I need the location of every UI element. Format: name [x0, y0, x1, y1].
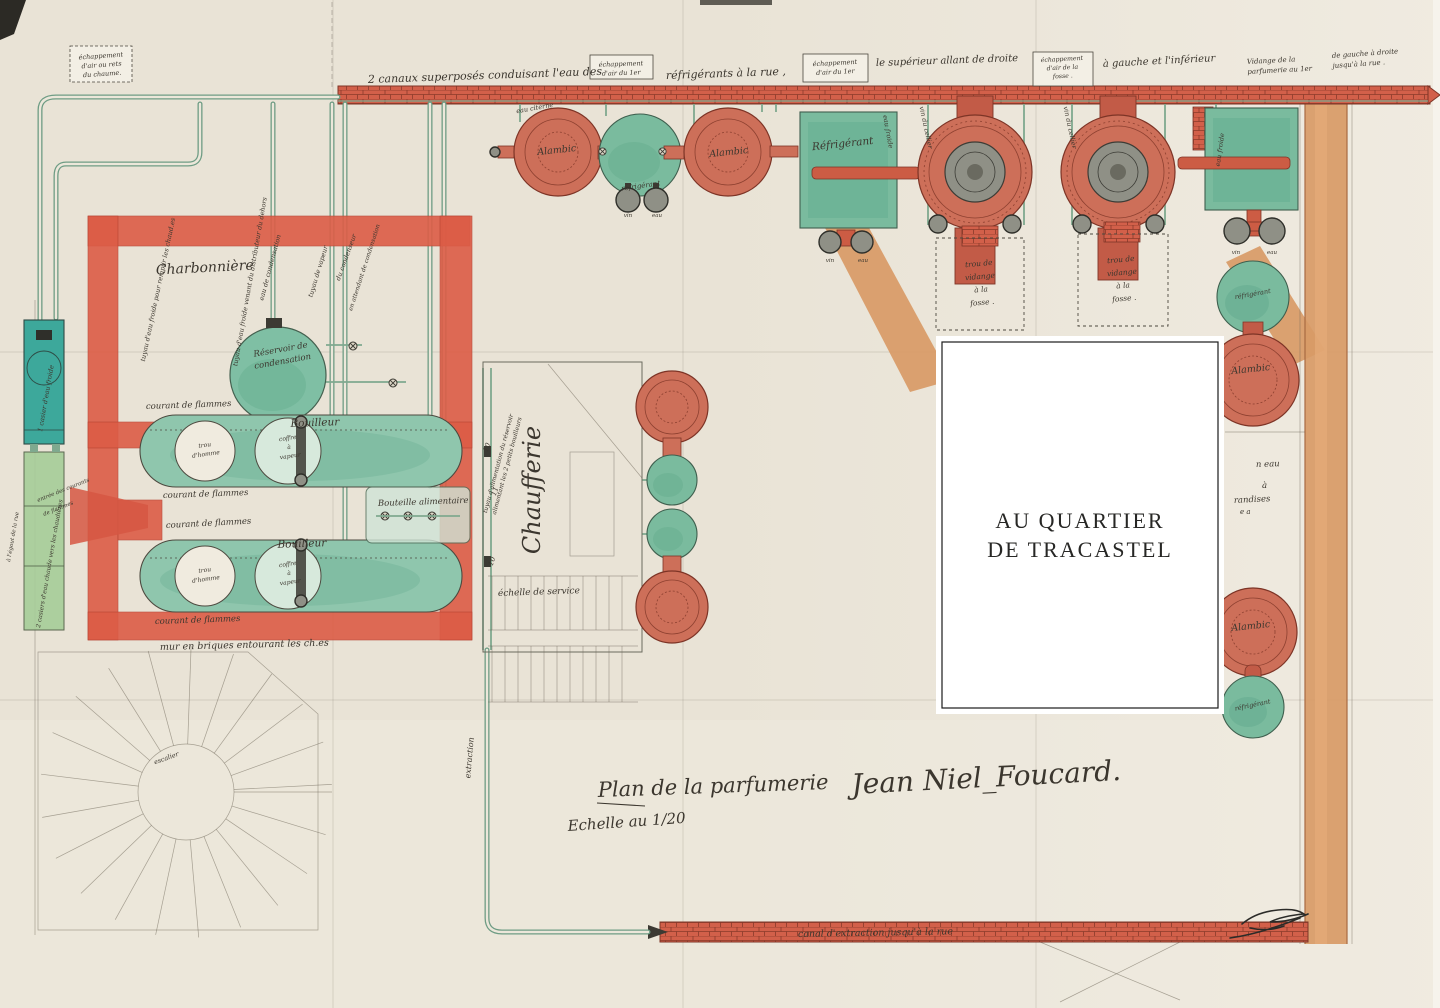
- scanned-plan: AU QUARTIER DE TRACASTEL Plan de la parf…: [0, 0, 1440, 1008]
- label-frag-eau: n eau: [1256, 459, 1280, 470]
- label-eau-sq2: eau: [1267, 250, 1278, 256]
- overlay-line-1: AU QUARTIER: [995, 508, 1164, 533]
- label-note-echap-1er-b: échappementd'air du 1er: [812, 58, 858, 77]
- label-note-echap-chaume: échappementd'air ou retsdu chaume.: [78, 50, 125, 79]
- overlay-line-2: DE TRACASTEL: [987, 537, 1173, 562]
- overlay-label-box: AU QUARTIER DE TRACASTEL: [936, 336, 1224, 714]
- label-eau-row1: eau: [652, 213, 663, 219]
- label-frag-a: à: [1262, 480, 1267, 491]
- label-note-echap-1er-a: échappementd'air du 1er: [599, 59, 644, 78]
- label-vin-sq2: vin: [1232, 250, 1241, 256]
- label-frag-ea: e a: [1240, 508, 1251, 516]
- label-vin-sq1: vin: [826, 258, 835, 264]
- label-eau-sq1: eau: [858, 258, 869, 264]
- bottom-canal: [660, 922, 1308, 942]
- label-boiler2-label: Bouilleur: [276, 537, 327, 551]
- label-room-chaufferie: Chaufferie: [518, 426, 546, 554]
- label-frag-marchandises: randises: [1234, 494, 1272, 506]
- label-boiler1-label: Bouilleur: [289, 416, 340, 430]
- wall-bottom: [88, 612, 472, 640]
- plan-drawing: AU QUARTIER DE TRACASTEL Plan de la parf…: [0, 0, 1440, 1008]
- label-vin-row1: vin: [624, 213, 633, 219]
- scan-edge-mark: [700, 0, 772, 5]
